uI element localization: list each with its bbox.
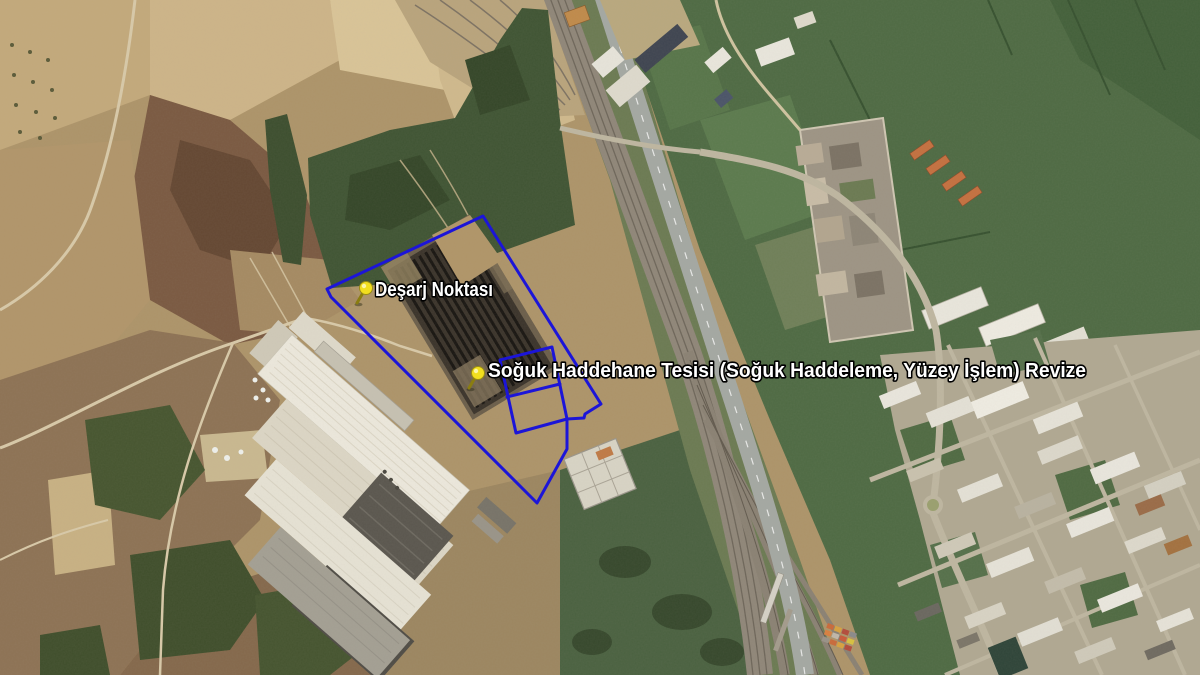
placemark-label: Soğuk Haddehane Tesisi (Soğuk Haddeleme,… — [488, 359, 1086, 382]
grain-overlay — [0, 0, 1200, 675]
satellite-scene: Deşarj Noktası Soğuk Haddehane Tesisi (S… — [0, 0, 1200, 675]
map-canvas[interactable]: Deşarj Noktası Soğuk Haddehane Tesisi (S… — [0, 0, 1200, 675]
placemark-label: Deşarj Noktası — [375, 279, 493, 301]
